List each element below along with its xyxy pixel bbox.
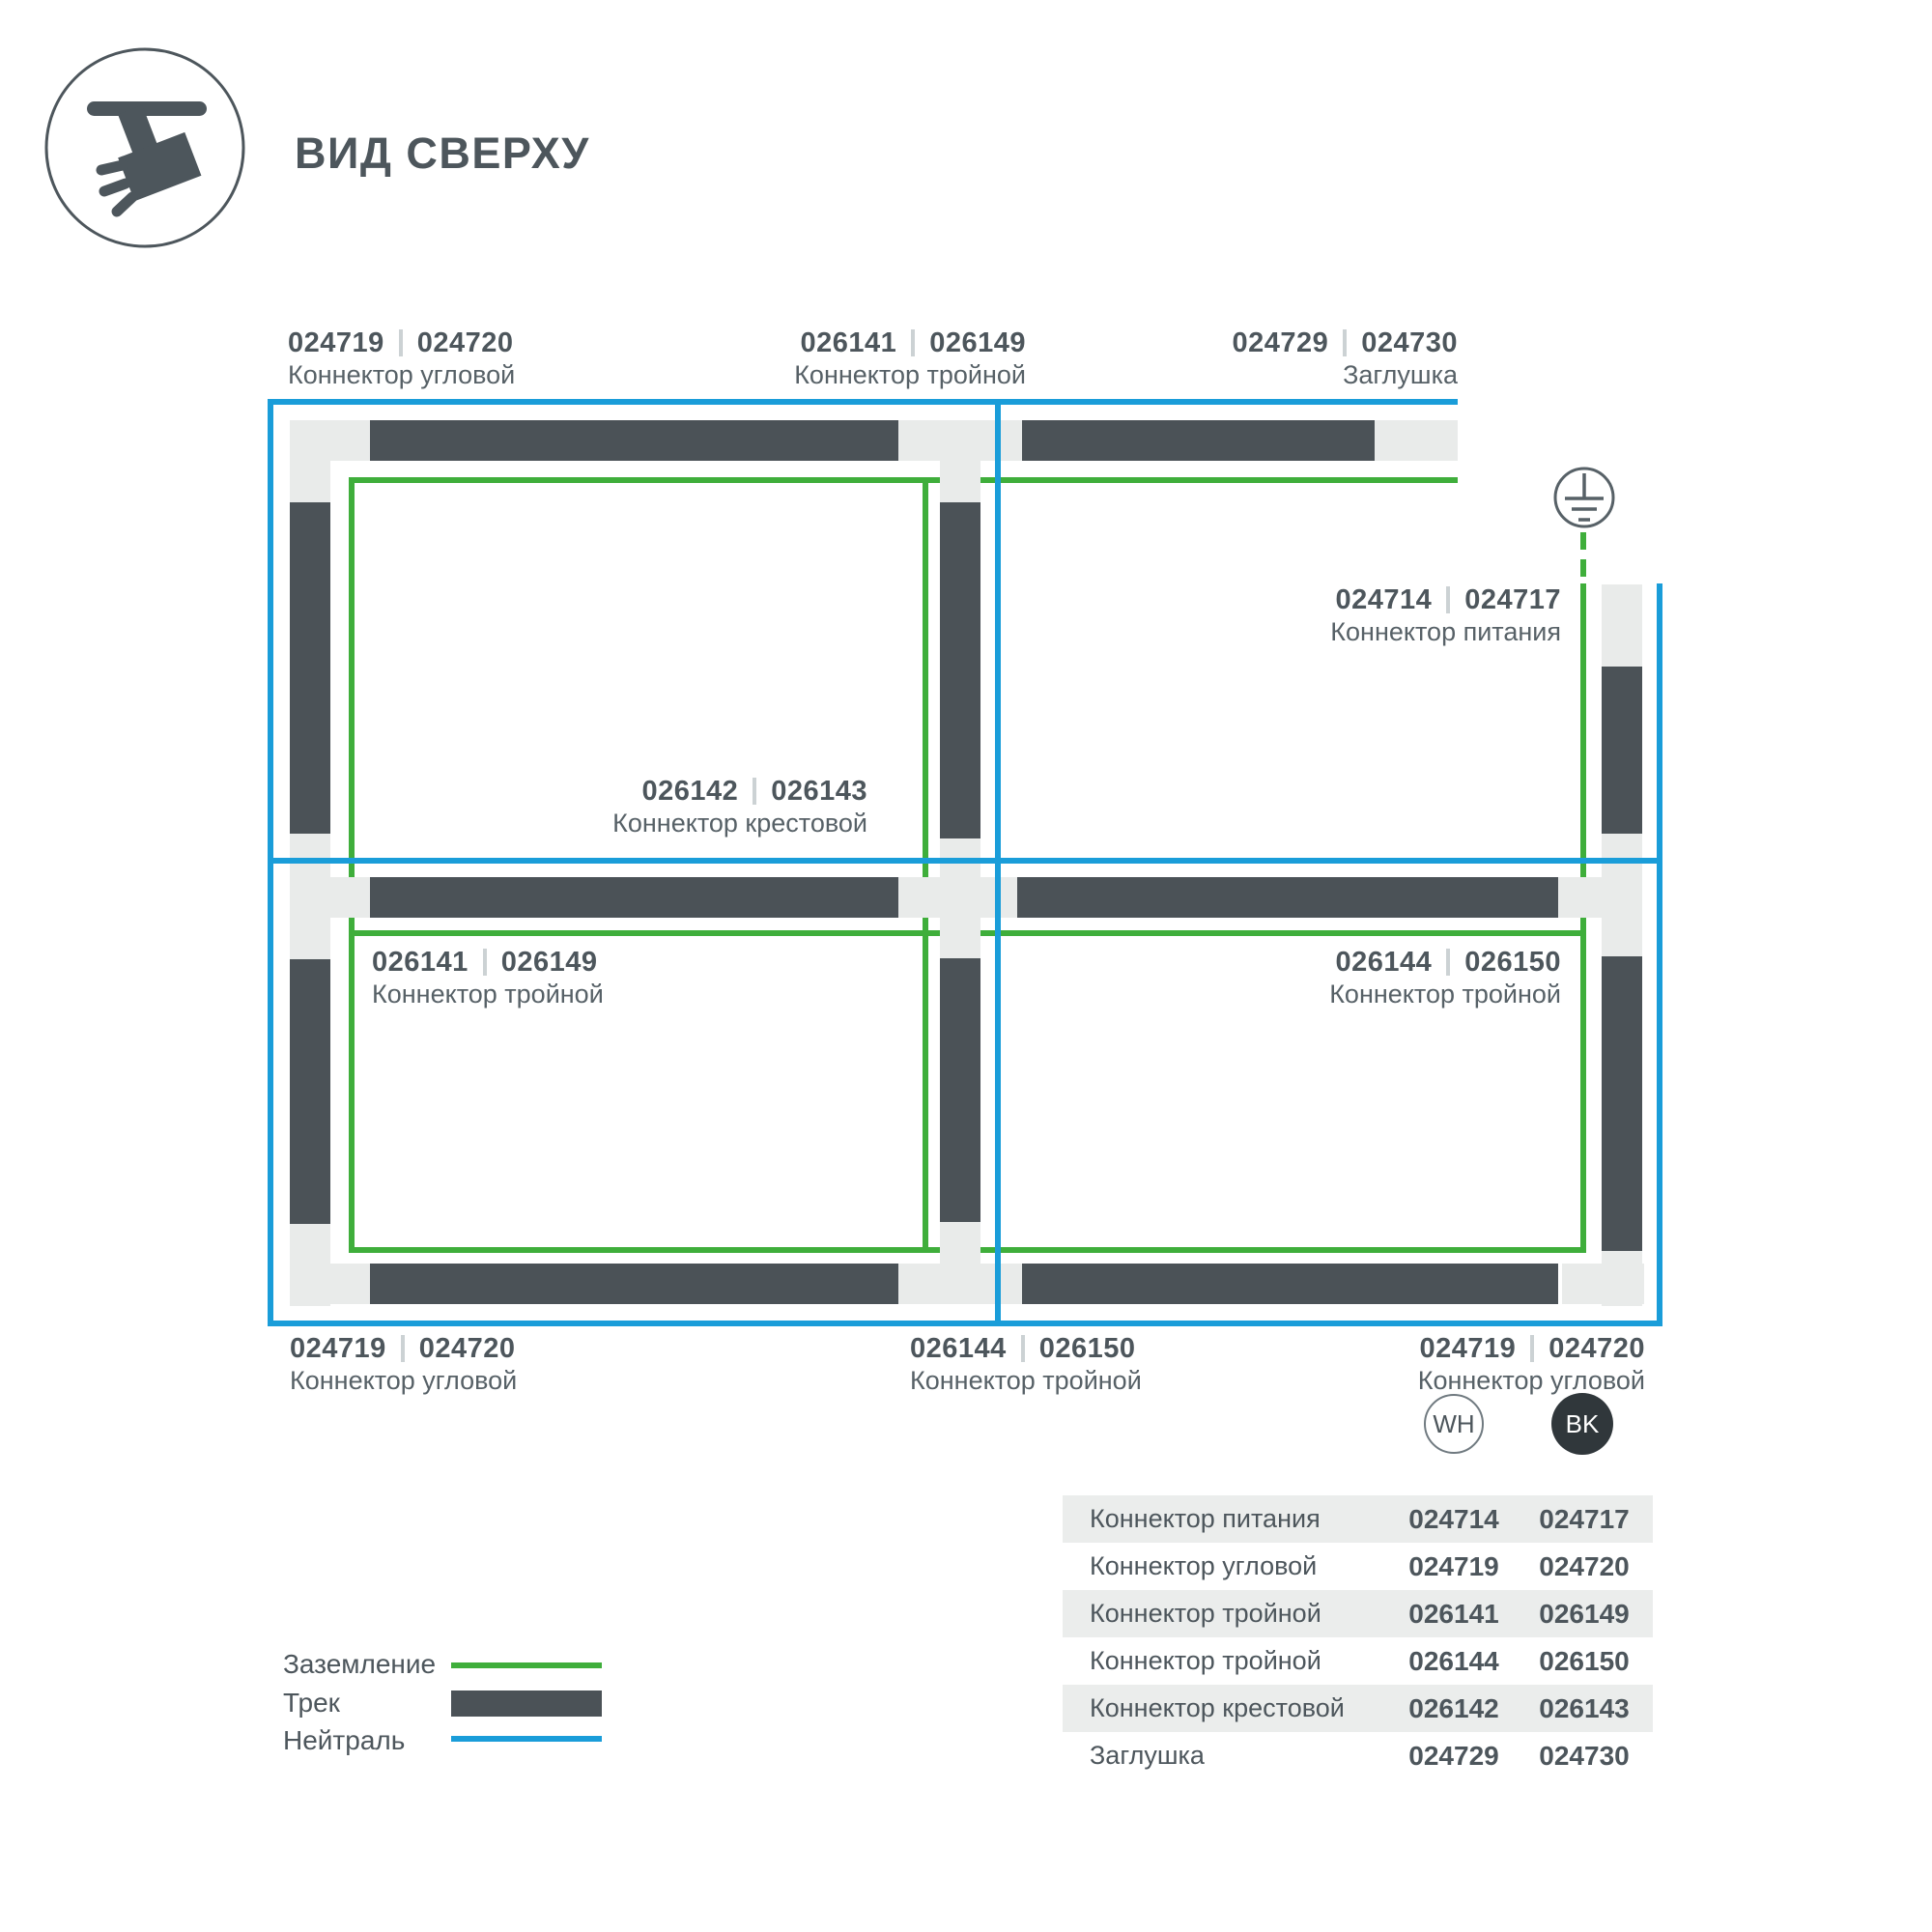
neutral-line-right — [1657, 583, 1662, 1326]
ground-line-left — [349, 477, 355, 1253]
neutral-line-center — [995, 399, 1001, 1326]
label-codes: 026141026149 — [372, 946, 604, 979]
part-code-wh: 024729 — [1381, 1732, 1526, 1779]
connector-tee-top-bar — [898, 420, 1022, 461]
ground-line-center — [923, 477, 928, 1253]
track-segment-bottom-right — [1022, 1264, 1558, 1304]
label-name: Коннектор тройной — [1329, 980, 1561, 1009]
table-row: Коннектор питания 024714 024717 — [1063, 1495, 1653, 1543]
earth-ground-icon — [1553, 467, 1615, 528]
connector-corner-bottom-right-h — [1562, 1264, 1644, 1304]
connector-tee-right-v — [1602, 834, 1642, 956]
label-codes: 024719024720 — [290, 1332, 517, 1365]
track-segment-center-lower — [940, 958, 980, 1222]
ground-line-right — [1580, 583, 1586, 1253]
label-codes: 026142026143 — [612, 775, 867, 808]
ground-line-top — [349, 477, 1458, 483]
connector-tee-left-stub — [330, 877, 370, 918]
connector-corner-top-left-v — [290, 420, 330, 502]
label-tee-middle-left: 026141026149 Коннектор тройной — [372, 946, 604, 1009]
part-name: Заглушка — [1090, 1732, 1205, 1779]
part-code-bk: 026143 — [1512, 1685, 1657, 1732]
separator — [1446, 586, 1450, 613]
connector-cross-v — [940, 838, 980, 958]
color-badge-white: WH — [1424, 1394, 1484, 1454]
label-name: Коннектор угловой — [1418, 1366, 1645, 1396]
label-name: Коннектор угловой — [290, 1366, 517, 1396]
label-name: Коннектор тройной — [372, 980, 604, 1009]
legend-label: Нейтраль — [283, 1724, 405, 1757]
separator — [1446, 949, 1450, 976]
label-cross-connector: 026142026143 Коннектор крестовой — [612, 775, 867, 838]
label-name: Коннектор тройной — [794, 360, 1026, 390]
label-codes: 026144026150 — [1329, 946, 1561, 979]
connector-corner-bottom-left-h — [290, 1264, 370, 1304]
table-row: Коннектор тройной 026141 026149 — [1063, 1590, 1653, 1637]
table-row: Заглушка 024729 024730 — [1063, 1732, 1653, 1779]
part-name: Коннектор тройной — [1090, 1637, 1321, 1685]
page: ВИД СВЕРХУ — [0, 0, 1932, 1932]
separator — [401, 1335, 405, 1362]
separator — [483, 949, 487, 976]
separator — [1343, 329, 1347, 356]
label-name: Коннектор питания — [1330, 617, 1561, 647]
separator — [753, 778, 756, 805]
track-segment-bottom-left — [370, 1264, 898, 1304]
connector-tee-bottom-leg — [940, 1222, 980, 1264]
part-name: Коннектор крестовой — [1090, 1685, 1345, 1732]
part-code-bk: 024717 — [1512, 1495, 1657, 1543]
neutral-line-swatch — [451, 1736, 602, 1742]
legend-label: Трек — [283, 1687, 340, 1719]
legend-item-ground: Заземление — [283, 1648, 611, 1681]
legend-label: Заземление — [283, 1648, 436, 1681]
neutral-line-middle — [268, 858, 1662, 864]
legend-item-track: Трек — [283, 1687, 611, 1719]
part-code-wh: 026142 — [1381, 1685, 1526, 1732]
track-bar-swatch — [451, 1690, 602, 1717]
label-corner-top-left: 024719024720 Коннектор угловой — [288, 327, 515, 390]
part-name: Коннектор питания — [1090, 1495, 1321, 1543]
separator — [399, 329, 403, 356]
track-segment-top-right — [1022, 420, 1375, 461]
part-code-wh: 026144 — [1381, 1637, 1526, 1685]
ground-dash-2 — [1580, 559, 1586, 577]
label-codes: 024714024717 — [1330, 583, 1561, 616]
track-segment-top-left — [370, 420, 898, 461]
track-segment-middle-right — [1017, 877, 1558, 918]
label-corner-bottom-right: 024719024720 Коннектор угловой — [1418, 1332, 1645, 1396]
label-name: Коннектор крестовой — [612, 809, 867, 838]
label-power-connector: 024714024717 Коннектор питания — [1330, 583, 1561, 647]
parts-table: WH BK Коннектор питания 024714 024717 Ко… — [1063, 1495, 1653, 1779]
label-codes: 024719024720 — [1418, 1332, 1645, 1365]
label-name: Коннектор угловой — [288, 360, 515, 390]
track-segment-right-upper — [1602, 667, 1642, 834]
end-cap-top-right — [1375, 420, 1458, 461]
part-code-wh: 024719 — [1381, 1543, 1526, 1590]
color-badge-black: BK — [1551, 1393, 1613, 1455]
label-codes: 024719024720 — [288, 327, 515, 359]
label-end-cap: 024729024730 Заглушка — [1232, 327, 1458, 390]
track-segment-middle-left — [370, 877, 898, 918]
ground-line-swatch — [451, 1662, 602, 1668]
track-segment-center-upper — [940, 502, 980, 838]
table-row: Коннектор угловой 024719 024720 — [1063, 1543, 1653, 1590]
separator — [1021, 1335, 1025, 1362]
part-code-bk: 026149 — [1512, 1590, 1657, 1637]
power-connector — [1602, 584, 1642, 667]
track-segment-right-lower — [1602, 956, 1642, 1251]
connector-tee-left-v — [290, 834, 330, 959]
separator — [1530, 1335, 1534, 1362]
part-code-wh: 026141 — [1381, 1590, 1526, 1637]
part-code-bk: 024730 — [1512, 1732, 1657, 1779]
label-codes: 026144026150 — [910, 1332, 1142, 1365]
part-name: Коннектор угловой — [1090, 1543, 1317, 1590]
part-name: Коннектор тройной — [1090, 1590, 1321, 1637]
separator — [911, 329, 915, 356]
label-name: Заглушка — [1232, 360, 1458, 390]
neutral-line-bottom — [268, 1321, 1662, 1326]
track-segment-left-lower — [290, 959, 330, 1224]
part-code-bk: 024720 — [1512, 1543, 1657, 1590]
legend-item-neutral: Нейтраль — [283, 1724, 611, 1757]
table-row: Коннектор крестовой 026142 026143 — [1063, 1685, 1653, 1732]
part-code-bk: 026150 — [1512, 1637, 1657, 1685]
neutral-line-top — [268, 399, 1458, 405]
label-tee-bottom: 026144026150 Коннектор тройной — [910, 1332, 1142, 1396]
label-name: Коннектор тройной — [910, 1366, 1142, 1396]
connector-tee-right-stub — [1558, 877, 1602, 918]
connector-tee-bottom-bar — [898, 1264, 1022, 1304]
part-code-wh: 024714 — [1381, 1495, 1526, 1543]
label-codes: 026141026149 — [794, 327, 1026, 359]
label-corner-bottom-left: 024719024720 Коннектор угловой — [290, 1332, 517, 1396]
label-codes: 024729024730 — [1232, 327, 1458, 359]
label-tee-top: 026141026149 Коннектор тройной — [794, 327, 1026, 390]
ground-dash-1 — [1580, 532, 1586, 550]
connector-tee-top-leg — [940, 461, 980, 502]
neutral-line-left — [268, 399, 273, 1326]
track-segment-left-upper — [290, 502, 330, 834]
label-tee-middle-right: 026144026150 Коннектор тройной — [1329, 946, 1561, 1009]
table-row: Коннектор тройной 026144 026150 — [1063, 1637, 1653, 1685]
